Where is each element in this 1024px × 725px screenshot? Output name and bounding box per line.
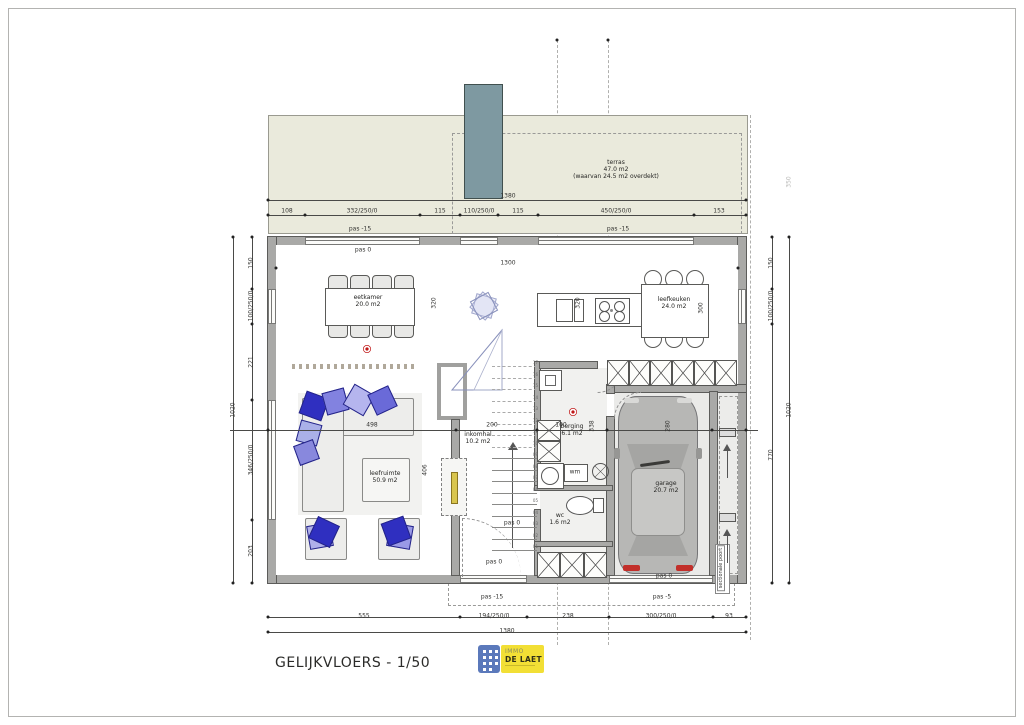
dimension-label: sectionale poort [717,545,725,591]
dimension-label: 332/250/0 [347,208,378,215]
stair-tread: 15 [492,389,537,390]
stair-tread: 10 [492,447,537,448]
floor-grille [292,364,414,369]
dimension-label: 406 [422,464,429,475]
room-label-leefkeuken: leefkeuken24.0 m2 [658,296,691,310]
dimension-tick [267,631,270,634]
window [268,400,276,520]
dimension-tick [745,616,748,619]
dimension-tick [771,236,774,239]
dimension-label: 200 [486,422,497,429]
dimension-tick [537,214,540,217]
dimension-label: pas 0 [656,573,672,580]
gate-panel [719,513,736,522]
logo-text-box: IMMO DE LAET [501,645,544,673]
dimension-tick [745,429,748,432]
dimension-tick [232,236,235,239]
dimension-tick [607,39,610,42]
dimension-label: pas 0 [504,520,520,527]
dimension-tick [267,429,270,432]
dimension-tick [267,199,270,202]
direction-arrow-head [723,444,731,451]
room-label-leefruimte: leefruimte50.9 m2 [370,470,401,484]
wall [452,420,459,460]
dimension-label: 221 [248,356,255,367]
cooktop [595,298,630,324]
dimension-label: pas -15 [481,594,503,601]
dimension-label: 115 [512,208,523,215]
dimension-tick [608,616,611,619]
stair-tread: 04 [492,516,537,517]
dimension-tick [693,214,696,217]
dimension-label: 555 [358,613,369,620]
dimension-tick [459,616,462,619]
logo-building-icon [478,645,500,673]
toilet-tank [593,498,604,513]
room-label-inkomhal: inkomhal10.2 m2 [464,431,491,445]
dimension-tick [711,429,714,432]
stair-tread: 16 [492,378,537,379]
dimension-label: 153 [713,208,724,215]
staircase: 0102030405060708091011121314151617 [492,366,537,562]
dimension-line [268,215,746,216]
dimension-label: 100/250/0 [768,291,775,322]
room-label-wc: wc1.6 m2 [549,512,570,526]
dimension-tick [526,616,529,619]
room-label-garage: garage20.7 m2 [654,480,679,494]
wall [452,514,459,575]
dimension-label: 1380 [499,628,514,635]
wardrobe-cabinets [607,360,737,386]
stair-tread: 13 [492,412,537,413]
stair-direction-line [512,448,513,548]
immo-de-laet-logo: IMMO DE LAET [478,644,544,674]
dining-chair [350,275,370,289]
fireplace [441,458,467,516]
direction-arrow [727,450,728,478]
dimension-tick [536,429,539,432]
pendant-lamp-icon [466,288,504,326]
wall [535,542,612,546]
dimension-tick [459,214,462,217]
dimension-tick [251,236,254,239]
dimension-tick [771,288,774,291]
dimension-tick [788,582,791,585]
dimension-label: 498 [366,422,377,429]
hall-cabinets [537,552,607,578]
dimension-tick [745,214,748,217]
window [460,237,498,245]
dimension-label: 100/250/0 [248,291,255,322]
dimension-tick [251,399,254,402]
dimension-tick [275,267,278,270]
washing-machine-drum [541,467,559,485]
reference-point [363,345,371,353]
wall [540,362,597,368]
dining-chair [328,324,348,338]
dimension-label: 280 [665,420,672,431]
dimension-tick [737,267,740,270]
grid-line [750,115,751,640]
stair-tread: 03 [492,527,537,528]
stair-tread: 06 [492,493,537,494]
stair-tread: 11 [492,435,537,436]
stair-tread: 14 [492,401,537,402]
stair-tread: 07 [492,481,537,482]
wall [607,385,746,392]
dimension-tick [788,236,791,239]
stair-tread: 12 [492,424,537,425]
dimension-label: 1300 [500,260,515,267]
dimension-line [268,200,746,201]
dimension-label: pas 0 [355,247,371,254]
dimension-label: 1020 [786,402,793,417]
dimension-label: 338 [589,420,596,431]
stair-tread: 17 [492,366,537,367]
dimension-tick [771,323,774,326]
dimension-tick [251,323,254,326]
dining-chair [350,324,370,338]
logo-immo-text: IMMO [505,648,544,655]
dimension-tick [267,214,270,217]
cabinet [539,370,562,391]
dining-chair [372,275,392,289]
dimension-tick [556,39,559,42]
floor-plan-page: 0102030405060708091011121314151617 GELIJ… [0,0,1024,725]
direction-arrow-head [723,529,731,536]
dimension-label: 194/250/0 [479,613,510,620]
room-label-terras: terras47.0 m2(waarvan 24.5 m2 overdekt) [573,159,659,181]
dining-chair [372,324,392,338]
dimension-label: 1380 [500,193,515,200]
dimension-label: pas -15 [607,226,629,233]
window [538,237,694,245]
washing-machine [537,463,564,489]
drawing-title: GELIJKVLOERS - 1/50 [275,655,430,671]
dimension-label: 238 [562,613,573,620]
dimension-label: pas -5 [653,594,672,601]
room-label-eetkamer: eetkamer20.0 m2 [354,294,383,308]
dimension-tick [419,214,422,217]
dimension-label: 320 [575,297,582,308]
chimney [464,84,503,199]
dimension-tick [497,214,500,217]
reference-point [569,408,577,416]
dimension-tick [455,429,458,432]
stair-tread: 08 [492,470,537,471]
wall [607,417,614,575]
dimension-label: 108 [281,208,292,215]
dimension-tick [304,214,307,217]
logo-rule [505,665,535,666]
dimension-label: wm [570,469,581,476]
section-line [230,430,758,431]
dimension-tick [267,616,270,619]
dimension-label: 100 [555,422,566,429]
dimension-label: 150 [248,257,255,268]
dimension-label: 93 [725,613,733,620]
drain-symbol [592,463,609,480]
stair-tread: 05 [492,504,537,505]
stair-tread: 01 [492,550,537,551]
kitchen-sink [556,299,573,322]
dimension-tick [251,519,254,522]
cabinet-inner [545,375,556,386]
stair-tread: 09 [492,458,537,459]
dimension-tick [745,631,748,634]
dimension-tick [251,288,254,291]
dining-chair [328,275,348,289]
window [268,289,276,324]
dimension-label: pas 0 [486,559,502,566]
logo-delaet-text: DE LAET [505,655,544,664]
dimension-tick [606,429,609,432]
dimension-label: pas -15 [349,226,371,233]
dimension-label: 320 [431,297,438,308]
dimension-label: 300/250/0 [646,613,677,620]
dining-chair [394,275,414,289]
dimension-label: 115 [434,208,445,215]
dining-chair [394,324,414,338]
window [738,289,746,324]
dimension-label: 346/250/0 [248,445,255,476]
stair-tread: 02 [492,539,537,540]
dimension-tick [232,582,235,585]
dimension-tick [771,582,774,585]
fireplace-flue [451,472,458,504]
dimension-label: 110/250/0 [464,208,495,215]
dimension-label: 203 [248,545,255,556]
window [305,237,420,245]
dimension-tick [712,616,715,619]
dimension-label: 350 [786,176,793,187]
dimension-label: 300 [698,302,705,313]
dimension-label: 150 [768,257,775,268]
dimension-label: 1020 [230,402,237,417]
dimension-tick [745,199,748,202]
dimension-label: 770 [768,449,775,460]
direction-arrow [727,535,728,563]
dimension-tick [251,582,254,585]
dimension-label: 450/250/0 [601,208,632,215]
